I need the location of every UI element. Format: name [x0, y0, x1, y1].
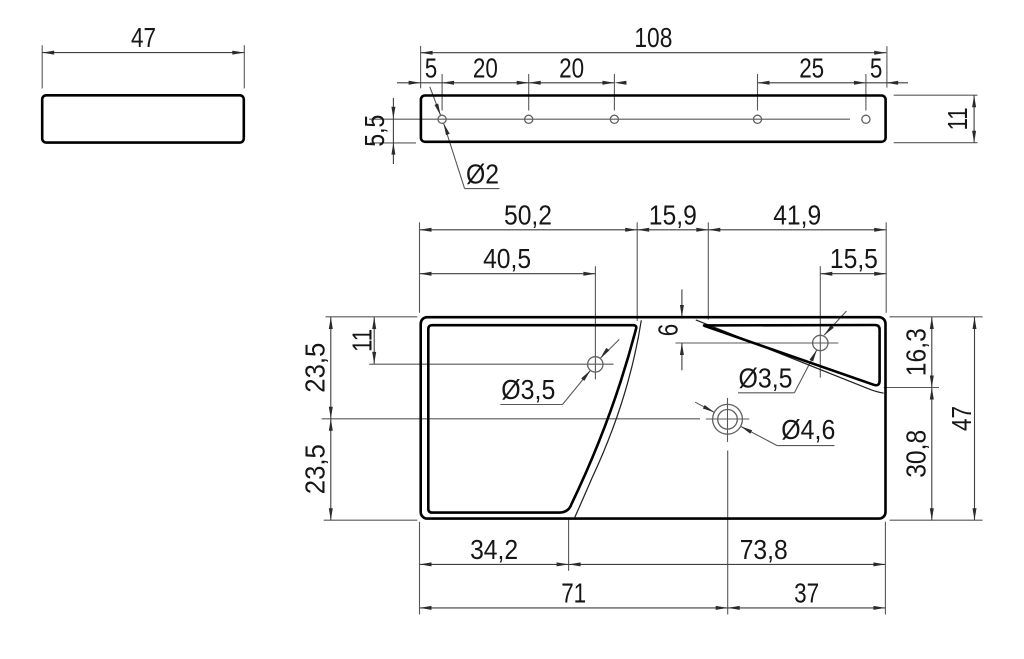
svg-text:73,8: 73,8 — [740, 534, 788, 565]
svg-text:Ø2: Ø2 — [466, 159, 499, 190]
svg-text:25: 25 — [799, 52, 824, 83]
svg-text:50,2: 50,2 — [504, 199, 552, 230]
svg-text:5,5: 5,5 — [359, 115, 390, 147]
svg-text:11: 11 — [347, 329, 378, 352]
svg-text:6: 6 — [653, 324, 684, 337]
svg-text:47: 47 — [131, 22, 156, 53]
svg-text:37: 37 — [794, 577, 819, 608]
svg-text:20: 20 — [473, 52, 498, 83]
svg-text:11: 11 — [942, 107, 973, 130]
svg-text:Ø3,5: Ø3,5 — [739, 362, 793, 393]
svg-text:Ø4,6: Ø4,6 — [781, 414, 835, 445]
svg-text:15,9: 15,9 — [649, 199, 697, 230]
svg-text:15,5: 15,5 — [830, 243, 878, 274]
svg-text:108: 108 — [634, 22, 672, 53]
svg-text:16,3: 16,3 — [901, 328, 932, 376]
svg-text:5: 5 — [425, 52, 438, 83]
svg-text:23,5: 23,5 — [299, 343, 330, 393]
svg-text:41,9: 41,9 — [773, 199, 821, 230]
svg-text:71: 71 — [561, 577, 586, 608]
svg-text:30,8: 30,8 — [901, 430, 932, 478]
svg-text:47: 47 — [946, 406, 977, 431]
svg-text:23,5: 23,5 — [299, 444, 330, 494]
svg-text:40,5: 40,5 — [483, 243, 531, 274]
svg-text:20: 20 — [559, 52, 584, 83]
svg-text:5: 5 — [870, 52, 883, 83]
svg-text:Ø3,5: Ø3,5 — [501, 374, 555, 405]
svg-text:34,2: 34,2 — [470, 534, 518, 565]
